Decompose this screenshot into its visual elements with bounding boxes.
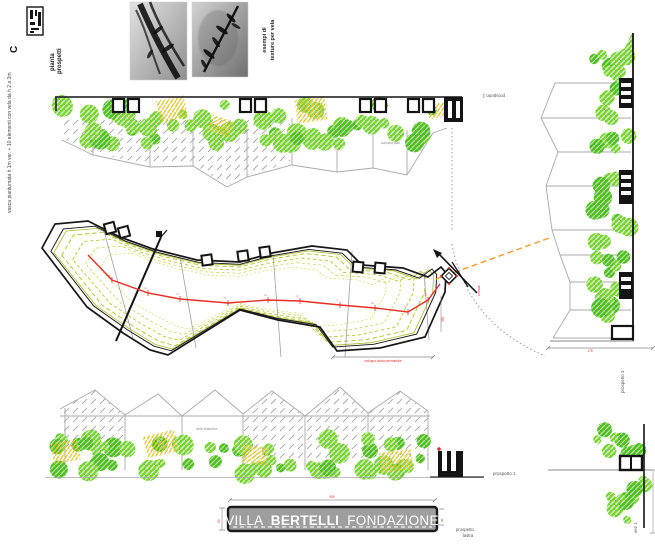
tree-blob [417,434,431,448]
tree-blob [52,95,72,115]
banner-dim-right: 90 [439,509,444,525]
tree-blob [361,432,375,446]
tree-blob [305,128,321,144]
tree-blob [602,444,616,458]
tree-blob [416,454,425,463]
tree-blob [620,218,639,237]
banner-dim-right-value: 90 [440,518,444,522]
path-tick-label: 6 [296,295,300,297]
sheet-title-line1: pianta [50,53,56,71]
tree-blob [184,119,197,132]
tree-blob [119,441,136,458]
tree-cluster-below [606,476,653,524]
tree-blob [209,455,222,468]
tree-blob [602,254,615,267]
drawing-sheet: C pianta prospetti vasca piantumata h 1m… [0,0,655,545]
elevation-label-top: prospetto 2 [482,94,505,99]
tree-blob [623,516,631,524]
tree-blob [119,113,134,128]
logo-mark [35,10,37,16]
banner-dim-left: 90 [217,508,225,530]
banner-sublabel-line2: lastra [463,533,474,538]
tree-blob [320,460,336,476]
banner-dim-left-value: 90 [217,519,221,523]
tree-blob [80,105,99,124]
red-marker-dot [437,447,441,451]
tree-blob [334,121,350,137]
path-tick-label: 3 [176,293,180,295]
vela-ladder-element [444,97,463,122]
path-tick-label: 7 [336,299,340,301]
path-tick-label: 5 [264,294,268,296]
tree-blob [141,137,153,149]
path-tick-label: 2 [144,287,148,289]
tree-blob [284,460,295,471]
sail-patch [241,444,269,465]
tree-blob [589,139,604,154]
tree-blob [590,251,603,264]
path-tick-label: 10 [424,292,428,296]
tree-blob [597,235,611,249]
tree-blob [593,435,601,443]
section-label: sez 1 [633,522,638,533]
tree-blob [617,250,631,264]
plan-outline-inner [51,226,437,351]
path-tick-label: 4 [224,297,228,299]
banner-word-1: VILLA [225,513,263,528]
plan-view: 12345678910 sviluppo lastra perimetrale … [42,221,552,363]
section-dimension [650,470,655,533]
right-dim-value: 175 [587,349,593,353]
tree-blob [276,463,285,472]
banner-word-2: BERTELLI [271,513,339,528]
tree-blob [219,443,229,453]
tree-blob [220,100,230,110]
plan-outline-outer [42,221,446,355]
tree-blob [594,188,612,206]
tree-blob [611,501,619,509]
entry-label: entrata [477,285,481,296]
section-planter-box [620,456,642,470]
logo-mark [38,12,41,26]
tree-blob [626,481,643,498]
photo-caption-line2: texture per vela [270,19,276,61]
banner-word-3: FONDAZIONE [347,513,439,528]
tree-blob [235,463,256,484]
title-banner: 550 90 VILLA BERTELLI FONDAZIONE 90 pros… [217,495,475,538]
tree-blob [621,128,637,144]
tree-blob [152,460,161,469]
panel-note-bottom: vele bianche [196,427,217,431]
tree-blob [387,125,404,142]
sheet-code: C [9,46,20,53]
banner-dim-top-value: 550 [329,495,335,499]
tree-blob [273,134,292,153]
tree-blob [232,119,248,135]
tree-blob [290,131,304,145]
tree-blob [379,118,390,129]
tree-blob [606,132,619,145]
section-sez-1: sez 1 [548,422,655,533]
right-dimension: 175 [546,346,655,353]
tree-blob [586,276,603,293]
tree-blob [616,494,625,503]
logo-mark [30,22,35,25]
plan-dimension-bottom: sviluppo lastra perimetrale [331,355,435,363]
plan-contours [54,228,434,349]
tree-blob [85,122,103,140]
plan-dim-note: sviluppo lastra perimetrale [364,359,401,363]
tree-blob [78,461,98,481]
sheet-canvas: C pianta prospetti vasca piantumata h 1m… [0,0,655,545]
tree-blob [355,115,368,128]
vela-ladder-bottom [437,447,463,477]
tree-blob [599,90,614,105]
tree-blob [306,461,317,472]
path-tick-label: 1 [108,274,112,276]
elevation-label-right: prospetto 3 [620,370,625,393]
tree-blob [260,134,272,146]
banner-sublabel-line1: prospetto [456,527,475,532]
tree-blob [603,66,614,77]
reference-dotted-arc [452,244,545,356]
studio-logo [27,7,43,35]
panel-note-top: vele bianche [381,141,400,145]
tree-blob [318,429,337,448]
logo-mark [30,31,34,33]
elevation-prospetto-1: vele bianche prospetto 1 [45,387,516,484]
tree-blob [597,50,607,60]
tree-blob [591,298,611,318]
texture-photos: esempi di texture per vela [130,2,276,80]
tree-blob [183,458,195,470]
tree-blob [167,119,180,132]
banner-text: VILLA BERTELLI FONDAZIONE [225,513,439,528]
tree-blob [205,442,216,453]
sail-patch [143,429,179,458]
tree-blob [80,437,93,450]
tree-blob [606,492,616,502]
tree-blob [597,422,612,437]
sheet-title-line2: prospetti [57,48,63,74]
tree-blob [405,133,424,152]
tree-blob [333,138,345,150]
elevation-prospetto-3: 175 prospetto 3 [541,31,655,393]
tree-blob [610,434,619,443]
path-tick-label: 9 [404,306,408,308]
elevation-label-bottom: prospetto 1 [493,471,516,476]
tree-blob [354,459,375,480]
tree-blob [384,437,398,451]
plan-entry-assembly: entrata [433,237,552,296]
logo-mark [31,28,39,30]
plan-side-dim: 350 [441,316,445,322]
photo-caption-line1: esempi di [262,27,268,53]
tree-blob [595,105,611,121]
sheet-side-note: vasca piantumata h 1m var. + 10 elementi… [7,73,13,214]
sail-patch [294,96,327,124]
banner-dim-top: 550 [228,495,437,502]
logo-mark [30,10,33,19]
path-tick-label: 8 [371,302,375,304]
